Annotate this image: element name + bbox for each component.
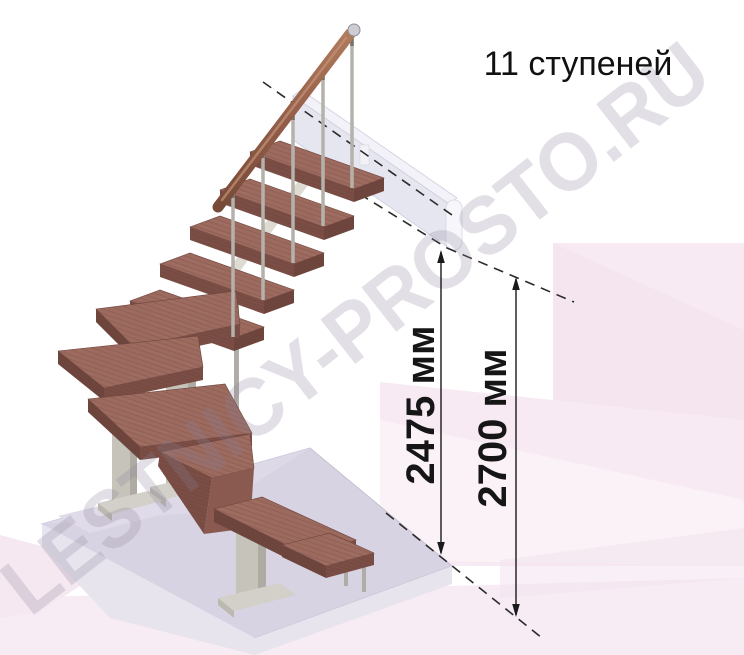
handrail-end-cap — [348, 24, 360, 36]
page-title: 11 ступеней — [484, 45, 673, 83]
staircase-diagram-page: LESTNICY-PROSTO.RU 2475 мм 2700 мм 11 ст… — [0, 0, 744, 655]
dimension-label: 2700 мм — [471, 348, 515, 507]
staircase-diagram: LESTNICY-PROSTO.RU 2475 мм 2700 мм 11 ст… — [0, 0, 744, 655]
dimension-label: 2475 мм — [399, 325, 443, 484]
arrow-up-icon — [512, 277, 520, 290]
